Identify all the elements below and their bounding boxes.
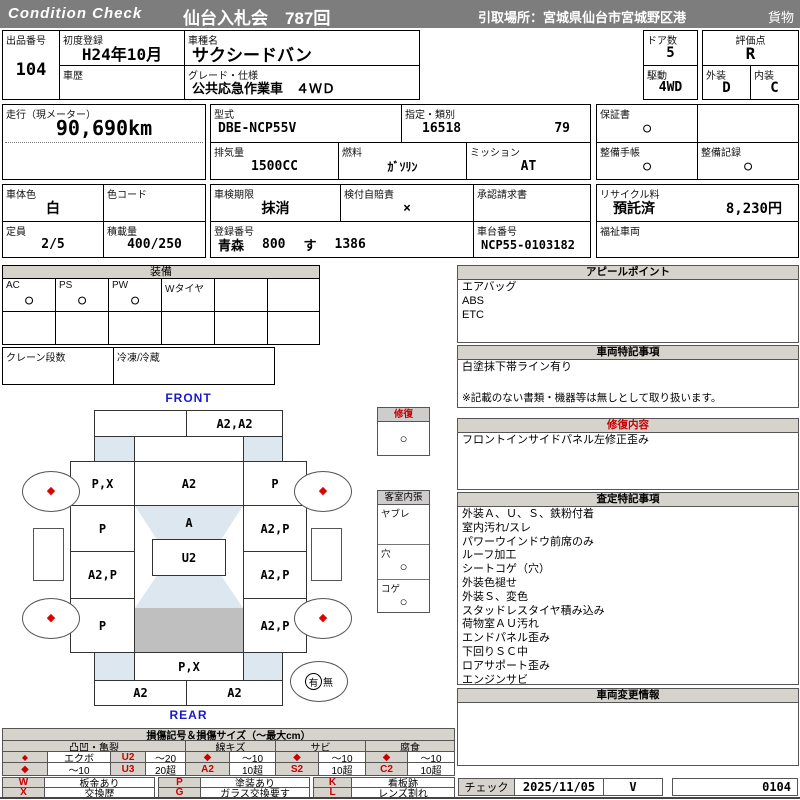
legend-rust-s2: S2 [275,762,319,776]
welfare-vehicle-cell: 福祉車両 [596,221,799,258]
pickup-location: 引取場所：宮城県仙台市宮城野区港 [478,7,686,26]
roof-panel: U2 [152,539,226,576]
blank-doc-cell [697,104,799,143]
rear-bumper-right-cell: A2 [186,680,283,706]
interior-score-cell: 内装 C [750,65,799,100]
plate-kana: す [304,235,317,254]
fuel-value: ｶﾞｿﾘﾝ [341,154,464,178]
body-color-cell: 車体色 白 [2,184,104,222]
doors-cell: ドア数 5 [643,30,698,66]
fuel-cell: 燃料 ｶﾞｿﾘﾝ [338,142,467,180]
vehicle-notes-panel: 車両特記事項 白塗抹下帯ライン有り ※記載のない書類・機器等は無しとして取り扱い… [457,345,799,408]
rear-label: REAR [94,708,283,722]
vin-value: NCP55-0103182 [476,233,588,256]
repair-flag-value: ○ [378,422,429,455]
assessment-line: ロアサポート歪み [462,660,794,674]
recycle-status: 預託済 [613,198,655,218]
appeal-line: エアバッグ [462,281,794,295]
capacity-value: 2/5 [5,233,101,256]
model-name-value: サクシードバン [187,42,417,64]
panel-left-2: P [70,505,135,552]
maintenance-book-value: ○ [599,154,695,178]
repair-detail-line: フロントインサイドパネル左修正歪み [462,434,794,448]
mirror-right [311,528,342,581]
history-cell: 車歴 [59,65,185,100]
wheel-front-right: ◆ [294,471,352,512]
interior-score-value: C [753,77,796,98]
recycle-amount: 8,230円 [726,198,782,218]
fridge-freezer-cell: 冷凍/冷蔵 [113,347,275,385]
sheet-number-cell: 0104 [672,778,798,796]
assessment-line: 室内汚れ/スレ [462,522,794,536]
transmission-cell: ミッション AT [466,142,591,180]
equipment-cell-empty-2 [267,278,320,312]
cabin-lining-title: 客室内張 [378,491,429,505]
license-plate-cell: 登録番号 青森 800 す 1386 [210,221,474,258]
auction-title: 仙台入札会 787回 [183,4,330,29]
assessment-line: スタッドレスタイヤ積み込み [462,605,794,619]
body-color-value: 白 [5,196,101,220]
repair-details-title: 修復内容 [458,419,798,433]
damage-diamond-icon: ◆ [319,613,327,624]
legend-dent-sym-large-icon: ◆ [2,762,48,776]
load-capacity-value: 400/250 [106,233,203,256]
assessment-line: 荷物室ＡＵ汚れ [462,618,794,632]
welfare-vehicle-value [599,233,796,256]
load-capacity-cell: 積載量 400/250 [103,221,206,258]
insurance-value: × [343,196,471,220]
equipment-cell-ac: AC ○ [2,278,56,312]
displacement-cell: 排気量 1500CC [210,142,339,180]
cabin-burn-value: ○ [378,588,429,614]
repair-flag-title: 修復 [378,408,429,422]
auction-condition-sheet: Condition Check 仙台入札会 787回 引取場所：宮城県仙台市宮城… [0,0,800,800]
wheel-rear-right: ◆ [294,598,352,639]
cabin-lining-box: 客室内張 ヤブレ 穴 ○ コゲ ○ [377,490,430,613]
spare-tire-indicator: 有 無 [290,661,348,702]
assessment-line: ルーフ加工 [462,549,794,563]
spare-yes-circled: 有 [305,673,322,690]
legend-rust-s2-size: 10超 [318,762,366,776]
equipment-empty-row-4 [161,311,215,345]
drivetrain-cell: 駆動 4WD [643,65,698,100]
appeal-line: ETC [462,309,794,323]
maintenance-record-value: ○ [700,154,796,178]
equipment-ps-value: ○ [58,290,106,310]
cowl-corner-left [94,436,135,462]
model-name-cell: 車種名 サクシードバン [184,30,420,66]
rear-corner-right [243,652,283,681]
front-bumper-left-cell [94,410,188,437]
drivetrain-value: 4WD [646,77,695,98]
cowl-corner-right [243,436,283,462]
crane-label: クレーン段数 [6,349,66,364]
legend-corrosion-c2-size: 10超 [407,762,455,776]
doors-value: 5 [646,42,695,64]
wheel-rear-left: ◆ [22,598,80,639]
repair-details-panel: 修復内容 フロントインサイドパネル左修正歪み [457,418,799,490]
assessment-notes-panel: 査定特記事項 外装Ａ、Ｕ、Ｓ、鉄粉付着 室内汚れ/スレ パワーウインドウ前席のみ… [457,492,799,685]
assessment-line: パワーウインドウ前席のみ [462,536,794,550]
vin-cell: 車台番号 NCP55-0103182 [473,221,591,258]
license-plate-value: 青森 800 す 1386 [213,233,471,256]
history-value [62,77,182,98]
panel-left-1: P,X [70,461,135,506]
vehicle-notes-body: 白塗抹下帯ライン有り ※記載のない書類・機器等は無しとして取り扱います。 [458,359,798,407]
maintenance-book-cell: 整備手帳 ○ [596,142,698,180]
assessment-line: 外装色褪せ [462,577,794,591]
cowl-center [134,436,244,462]
assessment-notes-title: 査定特記事項 [458,493,798,507]
legend-dent-u3: U3 [110,762,146,776]
cabin-tear-row: ヤブレ [378,505,429,544]
grade-score-value: R [705,42,796,64]
repair-details-body: フロントインサイドパネル左修正歪み [458,432,798,489]
equipment-cell-empty-1 [214,278,268,312]
equipment-empty-row-6 [267,311,320,345]
cabin-burn-row: コゲ ○ [378,579,429,614]
check-label-cell: チェック [458,778,515,796]
plate-class: 800 [262,237,285,252]
legend-dent-size: ～10 [47,762,111,776]
equipment-cell-pw: PW ○ [108,278,162,312]
appeal-points-panel: アピールポイント エアバッグ ABS ETC [457,265,799,343]
wheel-front-left: ◆ [22,471,80,512]
equipment-wtire-value [164,290,212,310]
damage-diamond-icon: ◆ [319,486,327,497]
header-bar: Condition Check 仙台入札会 787回 引取場所：宮城県仙台市宮城… [0,0,800,28]
panel-center-top: A2 [134,461,244,506]
assessment-line: 外装Ｓ、変色 [462,591,794,605]
recycle-fee-values: 預託済 8,230円 [599,196,796,220]
approval-request-value [476,196,588,220]
plate-region: 青森 [218,235,244,254]
appeal-points-body: エアバッグ ABS ETC [458,279,798,342]
plate-number: 1386 [335,237,366,252]
mirror-left [33,528,64,581]
rear-corner-left [94,652,135,681]
spare-no: 無 [323,674,333,689]
panel-left-4: P [70,598,135,653]
odometer-cell: 走行（現メーター） 90,690km [2,104,206,180]
crane-cell: クレーン段数 [2,347,114,385]
exterior-score-value: D [705,77,748,98]
appeal-line: ABS [462,295,794,309]
vehicle-note-line: 白塗抹下帯ライン有り [462,361,794,375]
assessment-line: エンドパネル歪み [462,632,794,646]
check-date-cell: 2025/11/05 [514,778,604,796]
assessment-line: シートコゲ（穴） [462,563,794,577]
grade-score-cell: 評価点 R [702,30,799,66]
cabin-tear-value [378,513,429,544]
equipment-cell-wtire: Wタイヤ [161,278,215,312]
appeal-points-title: アピールポイント [458,266,798,280]
front-bumper-right-cell: A2,A2 [186,410,283,437]
equipment-empty-row-3 [108,311,162,345]
bottom-rule [0,797,800,799]
fridge-freezer-label: 冷凍/冷蔵 [117,349,160,364]
color-code-cell: 色コード [103,184,206,222]
repair-flag-box: 修復 ○ [377,407,430,456]
vehicle-notes-title: 車両特記事項 [458,346,798,360]
equipment-empty-row-1 [2,311,56,345]
grade-value: 公共応急作業車 ４ＷＤ [187,77,417,98]
assessment-line: 下回りＳＣ中 [462,646,794,660]
check-mark-cell: V [603,778,663,796]
warranty-book-value: ○ [599,116,695,141]
brand-title: Condition Check [8,5,142,22]
damage-diamond-icon: ◆ [47,486,55,497]
assessment-line: 外装Ａ、Ｕ、Ｓ、鉄粉付着 [462,508,794,522]
first-registration-cell: 初度登録 H24年10月 [59,30,185,66]
lot-number-cell: 出品番号 104 [2,30,60,100]
assessment-notes-body: 外装Ａ、Ｕ、Ｓ、鉄粉付着 室内汚れ/スレ パワーウインドウ前席のみ ルーフ加工 … [458,506,798,684]
equipment-empty-row-2 [55,311,109,345]
legend-dent-u3-size: 20超 [145,762,186,776]
cabin-hole-row: 穴 ○ [378,544,429,579]
exterior-score-cell: 外装 D [702,65,751,100]
rear-bumper-left-cell: A2 [94,680,187,706]
equipment-header: 装備 [2,265,320,279]
panel-right-2: A2,P [243,505,307,552]
maintenance-record-cell: 整備記録 ○ [697,142,799,180]
inspection-expiry-cell: 車検期限 抹消 [210,184,341,222]
model-code-value: DBE-NCP55V [213,116,399,141]
damage-diamond-icon: ◆ [47,613,55,624]
equipment-empty-row-5 [214,311,268,345]
inspection-expiry-value: 抹消 [213,196,338,220]
vehicle-notes-footnote: ※記載のない書類・機器等は無しとして取り扱います。 [462,390,721,405]
type-class-values: 16518 79 [404,116,588,141]
equipment-ac-value: ○ [5,290,53,310]
vehicle-changes-body [458,702,798,765]
cargo-area [135,608,243,652]
panel-left-3: A2,P [70,551,135,599]
equipment-cell-ps: PS ○ [55,278,109,312]
vehicle-changes-title: 車両変更情報 [458,689,798,703]
assessment-line: エンジンサビ [462,674,794,684]
capacity-cell: 定員 2/5 [2,221,104,258]
type-class-cell: 指定・類別 16518 79 [401,104,591,143]
legend-scratch-a2: A2 [185,762,230,776]
panel-right-3: A2,P [243,551,307,599]
recycle-fee-cell: リサイクル料 預託済 8,230円 [596,184,799,222]
lot-number-value: 104 [5,42,57,98]
vehicle-changes-panel: 車両変更情報 [457,688,799,766]
legend-corrosion-c2: C2 [365,762,408,776]
class-number: 79 [554,121,570,136]
odometer-value: 90,690km [5,116,203,139]
insurance-cell: 検付自賠責 × [340,184,474,222]
approval-request-cell: 承認請求書 [473,184,591,222]
color-code-value [106,196,203,220]
cargo-tag: 貨物 [768,7,794,26]
front-label: FRONT [94,391,283,405]
spare-tire-values: 有 無 [305,673,333,690]
displacement-value: 1500CC [213,154,336,178]
equipment-pw-value: ○ [111,290,159,310]
first-registration-value: H24年10月 [62,42,182,64]
cabin-hole-value: ○ [378,553,429,579]
grade-cell: グレード・仕様 公共応急作業車 ４ＷＤ [184,65,420,100]
type-number: 16518 [422,121,461,136]
odometer-divider [5,142,203,143]
transmission-value: AT [469,154,588,178]
warranty-book-cell: 保証書 ○ [596,104,698,143]
legend-scratch-a2-size: 10超 [229,762,276,776]
model-code-cell: 型式 DBE-NCP55V [210,104,402,143]
panel-rear-center: P,X [134,652,244,681]
